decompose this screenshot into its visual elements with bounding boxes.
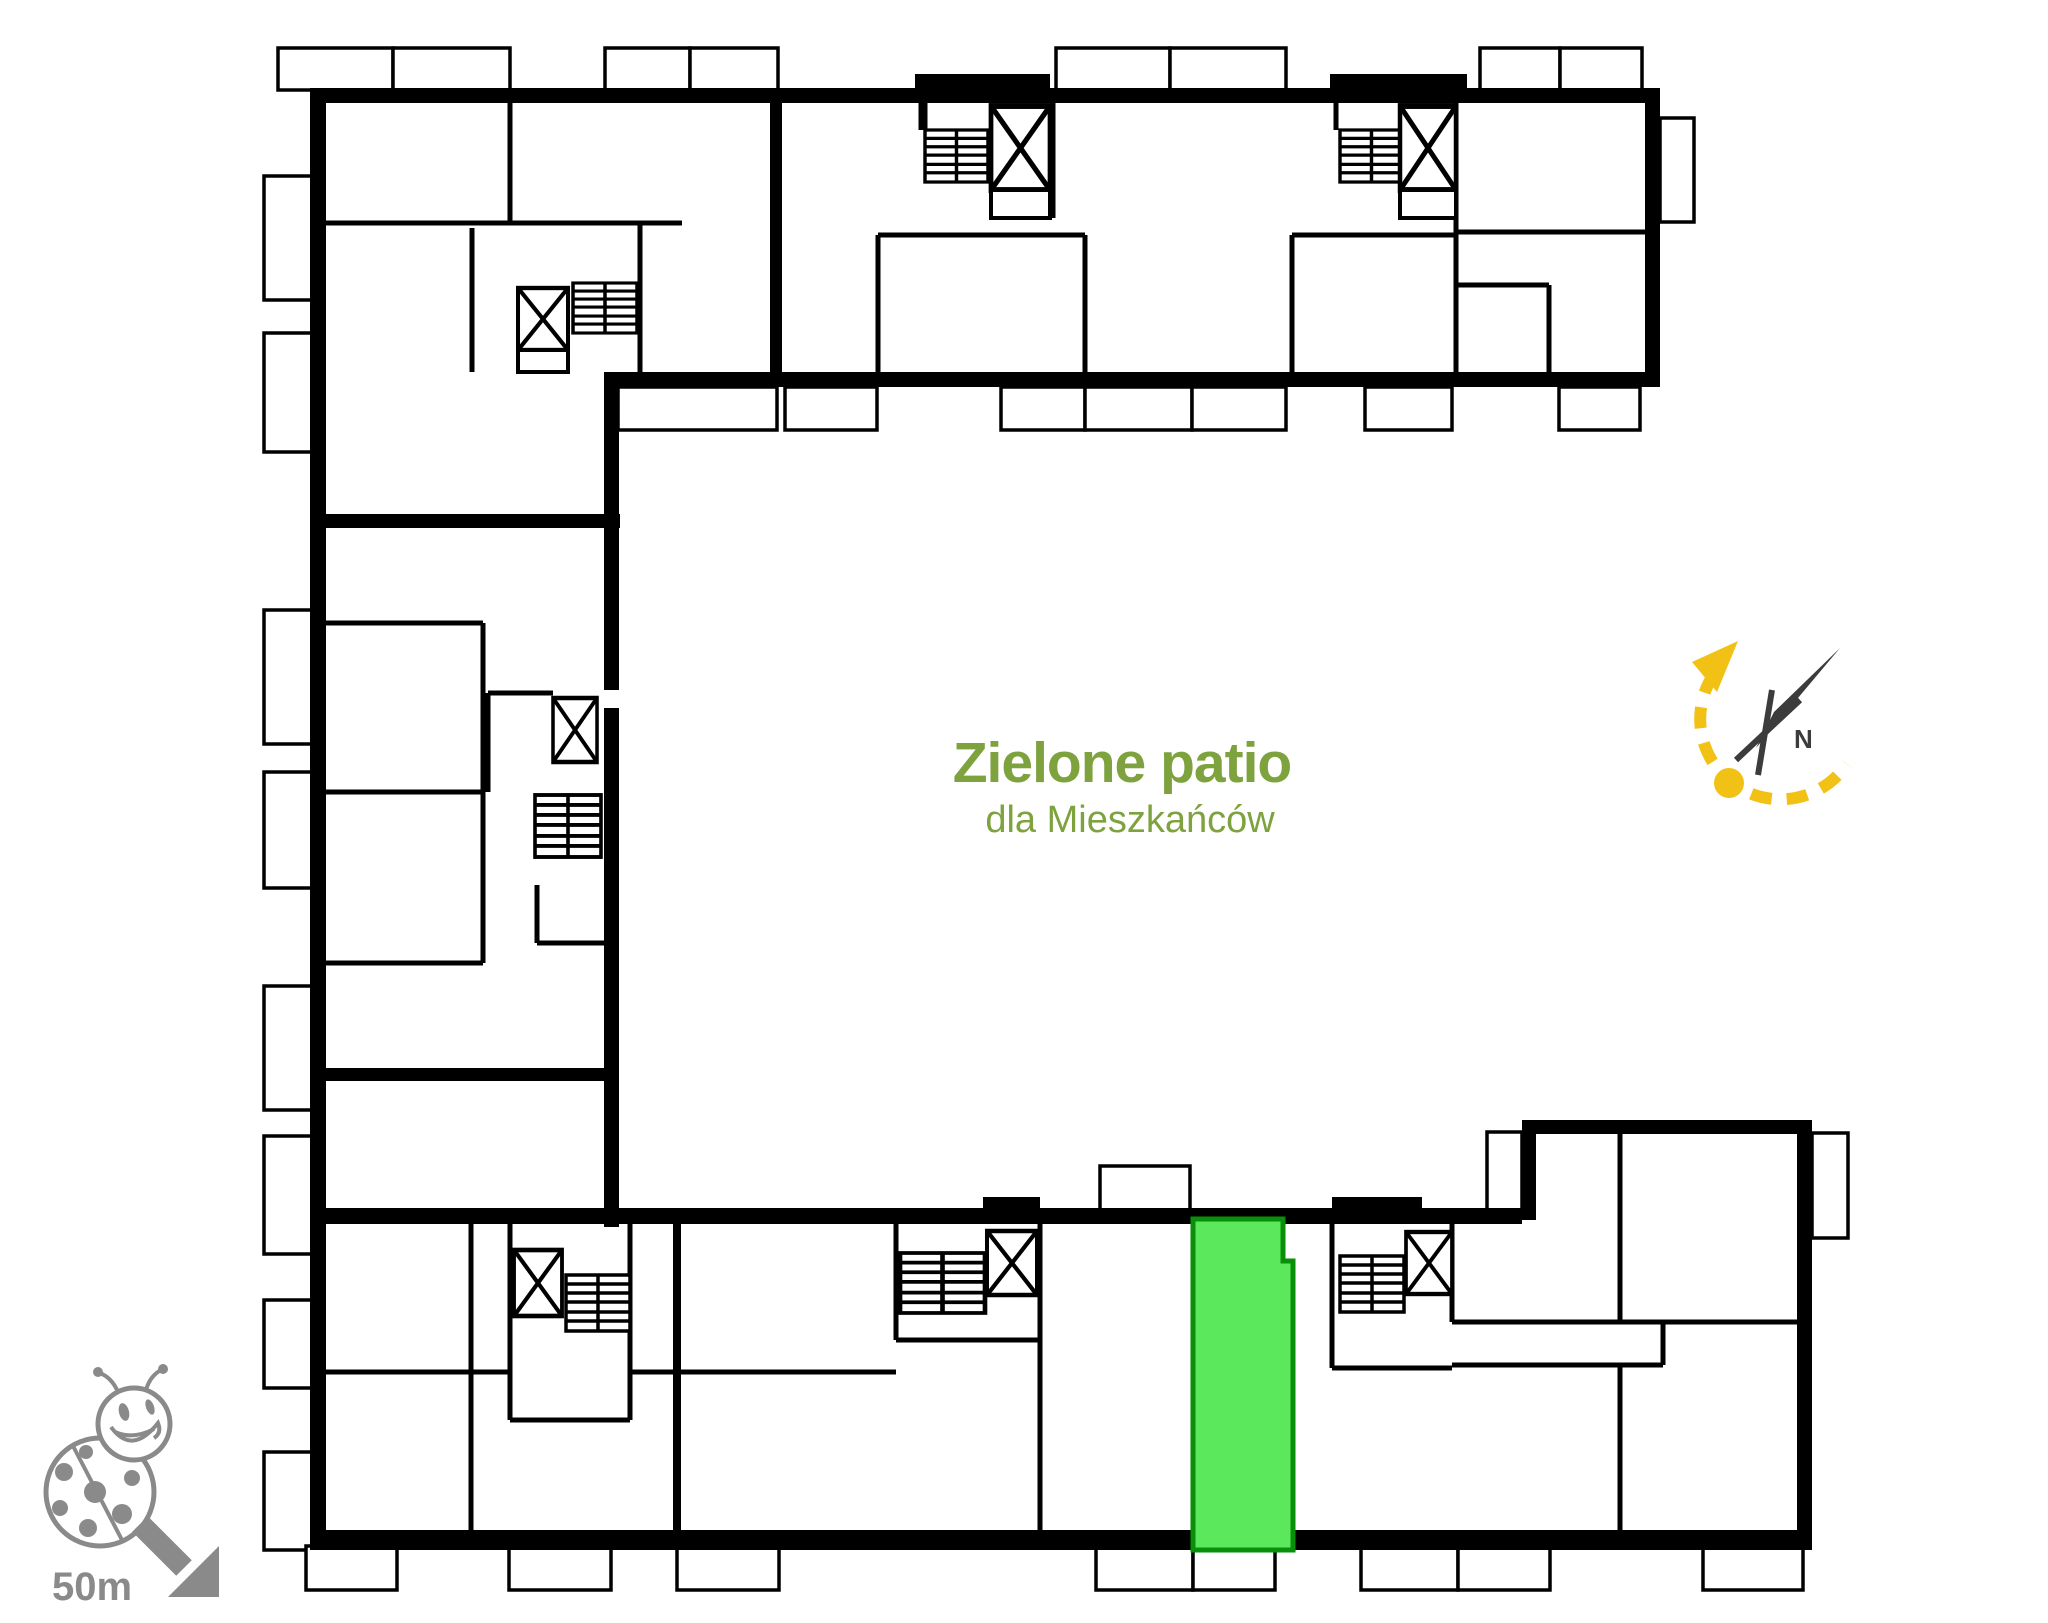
- elevator-icon: [991, 106, 1050, 190]
- core-bump: [1332, 1197, 1422, 1210]
- balcony: [1096, 1546, 1193, 1590]
- north-compass-icon: N: [1692, 641, 1847, 799]
- courtyard-label: Zielone patio dla Mieszkańców: [953, 731, 1292, 841]
- stairs-icon: [900, 1253, 985, 1313]
- wall-bottom: [310, 1530, 1812, 1550]
- balcony: [264, 1452, 312, 1550]
- balcony: [1170, 48, 1286, 90]
- courtyard-subtitle: dla Mieszkańców: [985, 799, 1275, 841]
- wall-step: [1522, 1120, 1536, 1220]
- elevator-icon: [553, 698, 597, 762]
- ladybug-logo-icon: [46, 1364, 170, 1546]
- balcony: [1812, 1133, 1848, 1238]
- balcony: [1458, 1546, 1550, 1590]
- balcony: [1001, 387, 1085, 430]
- core-bump: [983, 1197, 1040, 1210]
- stairs-icon: [1340, 1256, 1404, 1312]
- stairs-icon: [535, 795, 601, 857]
- elevator-icon: [987, 1231, 1037, 1295]
- wall-divider-topwing: [770, 100, 782, 387]
- balcony: [1193, 1546, 1275, 1590]
- balcony: [264, 176, 312, 300]
- ladybug-spot: [112, 1504, 132, 1524]
- balcony: [690, 48, 778, 90]
- highlighted-unit[interactable]: [1193, 1219, 1293, 1550]
- core-room: [518, 350, 568, 372]
- interior-wall: [326, 623, 483, 963]
- balcony: [1703, 1546, 1803, 1590]
- balcony: [264, 772, 312, 888]
- balcony: [278, 48, 393, 90]
- balcony: [1056, 48, 1170, 90]
- wall-divider-leftwing: [326, 1068, 608, 1081]
- ladybug-spot: [124, 1470, 140, 1486]
- courtyard-title: Zielone patio: [953, 731, 1292, 795]
- stair-cores: [514, 106, 1456, 1331]
- balcony: [618, 387, 777, 430]
- stairs-icon: [566, 1275, 630, 1331]
- wall-courtyard-top: [610, 372, 1660, 387]
- balcony: [306, 1546, 397, 1590]
- ladybug-spot: [55, 1463, 73, 1481]
- balcony: [264, 1136, 312, 1254]
- sun-position-dot: [1714, 768, 1744, 798]
- balcony: [264, 986, 312, 1110]
- wall-courtyard-left: [604, 708, 619, 1227]
- balcony: [1192, 387, 1286, 430]
- floor-plan-page: Zielone patio dla Mieszkańców N 50m: [0, 0, 2048, 1623]
- core-room: [1400, 190, 1456, 218]
- balcony: [1560, 48, 1642, 90]
- balcony: [785, 387, 877, 430]
- elevator-icon: [518, 288, 568, 350]
- core-bump: [1330, 74, 1467, 90]
- wall-right: [1797, 1120, 1812, 1530]
- balcony: [264, 1300, 312, 1388]
- wall-courtyard-bottom: [326, 1208, 1522, 1224]
- wall-divider-bottomwing: [673, 1224, 681, 1530]
- ladybug-spot: [52, 1500, 68, 1516]
- wall-rightblock-top: [1522, 1120, 1812, 1134]
- ladybug-spot: [84, 1481, 106, 1503]
- balcony: [264, 610, 312, 744]
- arc-arrowhead-icon: [1692, 641, 1738, 692]
- balcony: [393, 48, 510, 90]
- ladybug-antenna-tip: [93, 1367, 103, 1377]
- core-bump: [915, 74, 1050, 90]
- balcony: [1100, 1166, 1190, 1211]
- stairs-icon: [573, 283, 637, 333]
- stairs-icon: [925, 130, 988, 182]
- wall-topwing-right: [1645, 88, 1660, 387]
- interior-wall: [326, 1224, 896, 1530]
- balcony: [1487, 1132, 1522, 1210]
- interior-wall: [1456, 232, 1645, 372]
- balcony: [509, 1546, 611, 1590]
- ladybug-spot: [79, 1445, 93, 1459]
- arrow-down-right-icon: [140, 1524, 184, 1568]
- north-label: N: [1794, 724, 1813, 754]
- balcony: [605, 48, 690, 90]
- elevator-icon: [1400, 106, 1456, 190]
- balcony: [264, 333, 312, 452]
- floor-plan-svg: Zielone patio dla Mieszkańców N 50m: [0, 0, 2048, 1623]
- balcony: [1365, 387, 1452, 430]
- elevator-icon: [1406, 1232, 1452, 1294]
- balcony: [1559, 387, 1640, 430]
- balcony: [1085, 387, 1192, 430]
- balcony: [1660, 118, 1694, 222]
- stairs-icon: [1340, 130, 1403, 182]
- balcony: [1480, 48, 1560, 90]
- balcony: [677, 1546, 779, 1590]
- ladybug-antenna-tip: [158, 1364, 168, 1374]
- ladybug-spot: [79, 1519, 97, 1537]
- wall-courtyard-left: [604, 372, 619, 690]
- ladybug-antenna: [100, 1373, 118, 1392]
- core-room: [991, 190, 1050, 218]
- ladybug-antenna: [146, 1370, 161, 1390]
- wall-left: [310, 88, 326, 1550]
- wall-divider-leftwing: [326, 514, 620, 528]
- scale-label: 50m: [52, 1565, 132, 1609]
- elevator-icon: [514, 1250, 562, 1316]
- balcony: [1361, 1546, 1458, 1590]
